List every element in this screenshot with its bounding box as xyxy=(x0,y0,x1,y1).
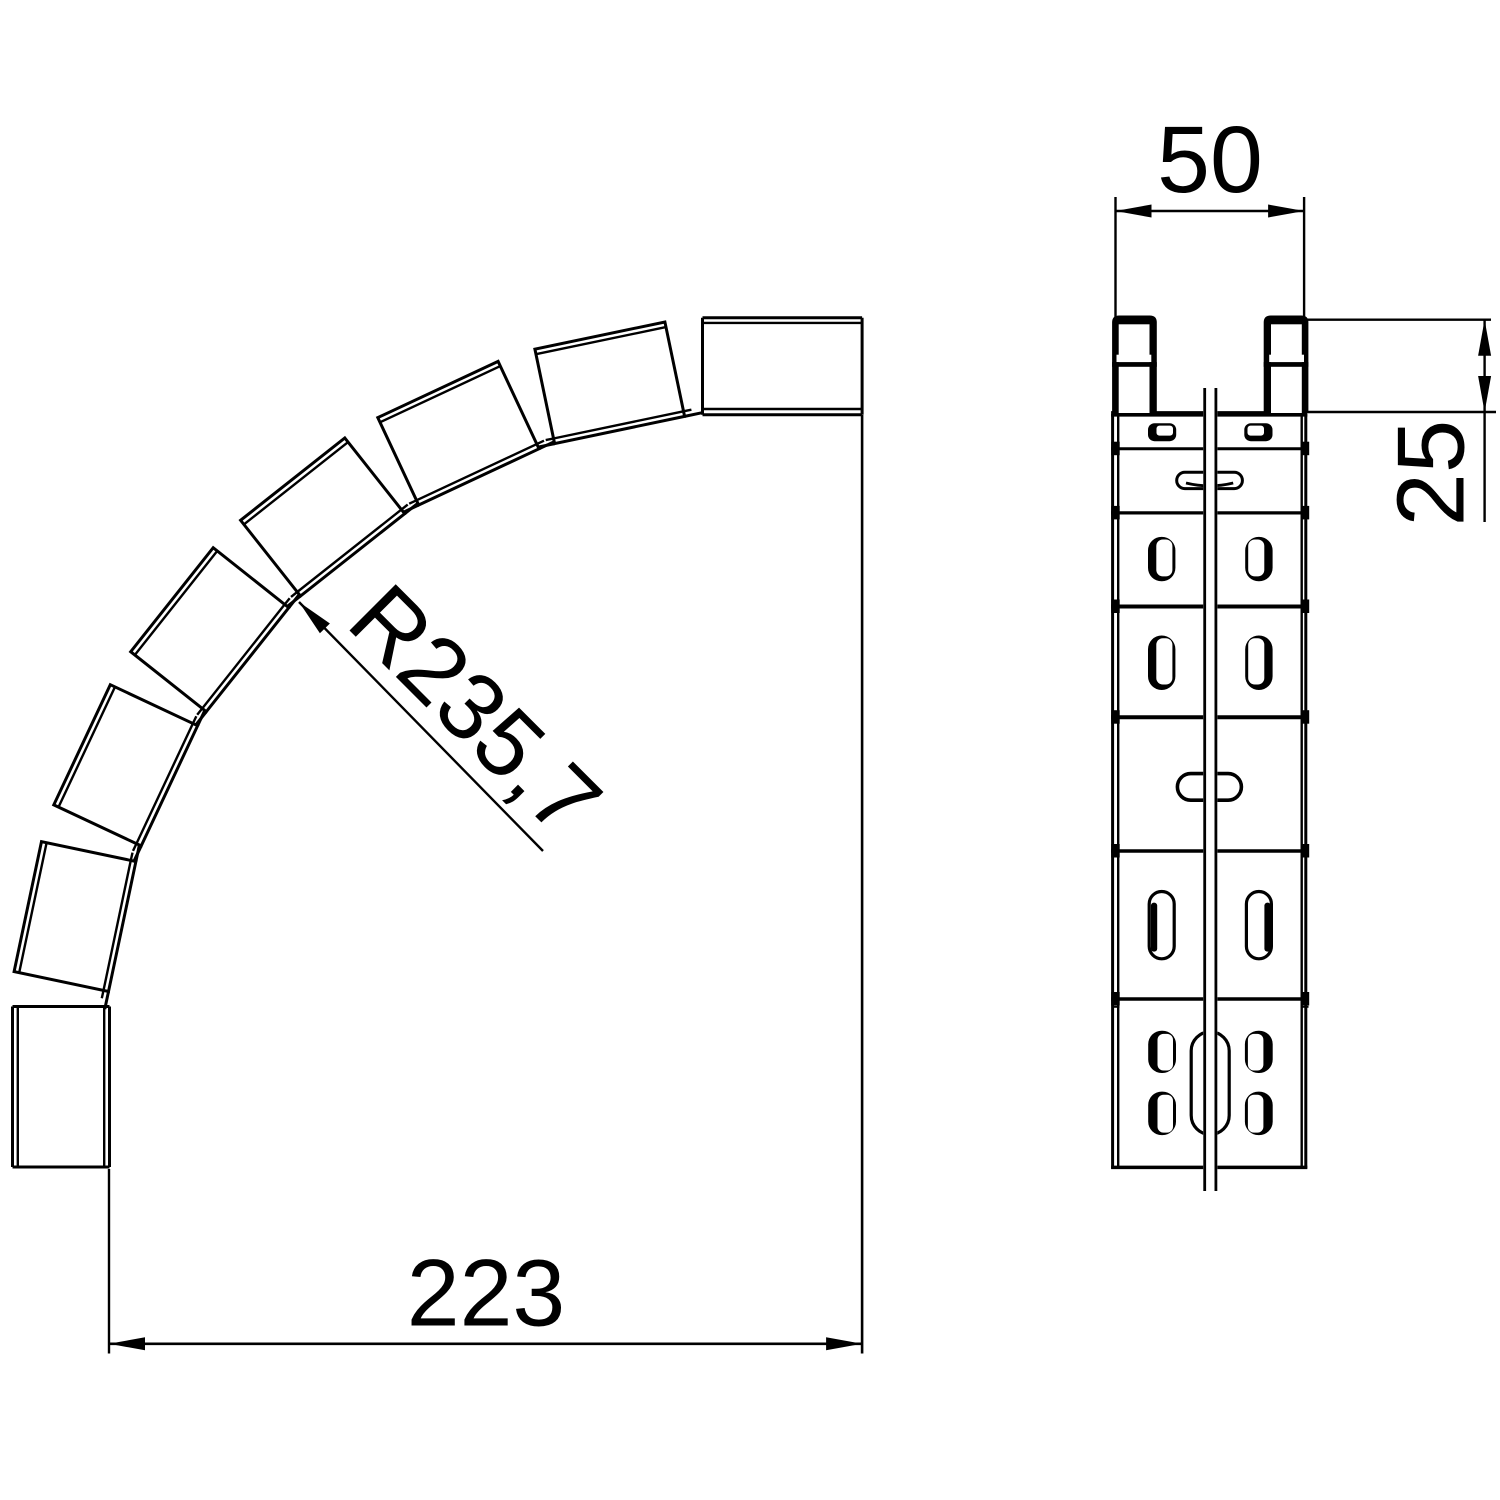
svg-text:25: 25 xyxy=(1378,420,1485,527)
svg-text:50: 50 xyxy=(1157,107,1263,213)
svg-text:223: 223 xyxy=(407,1241,566,1347)
